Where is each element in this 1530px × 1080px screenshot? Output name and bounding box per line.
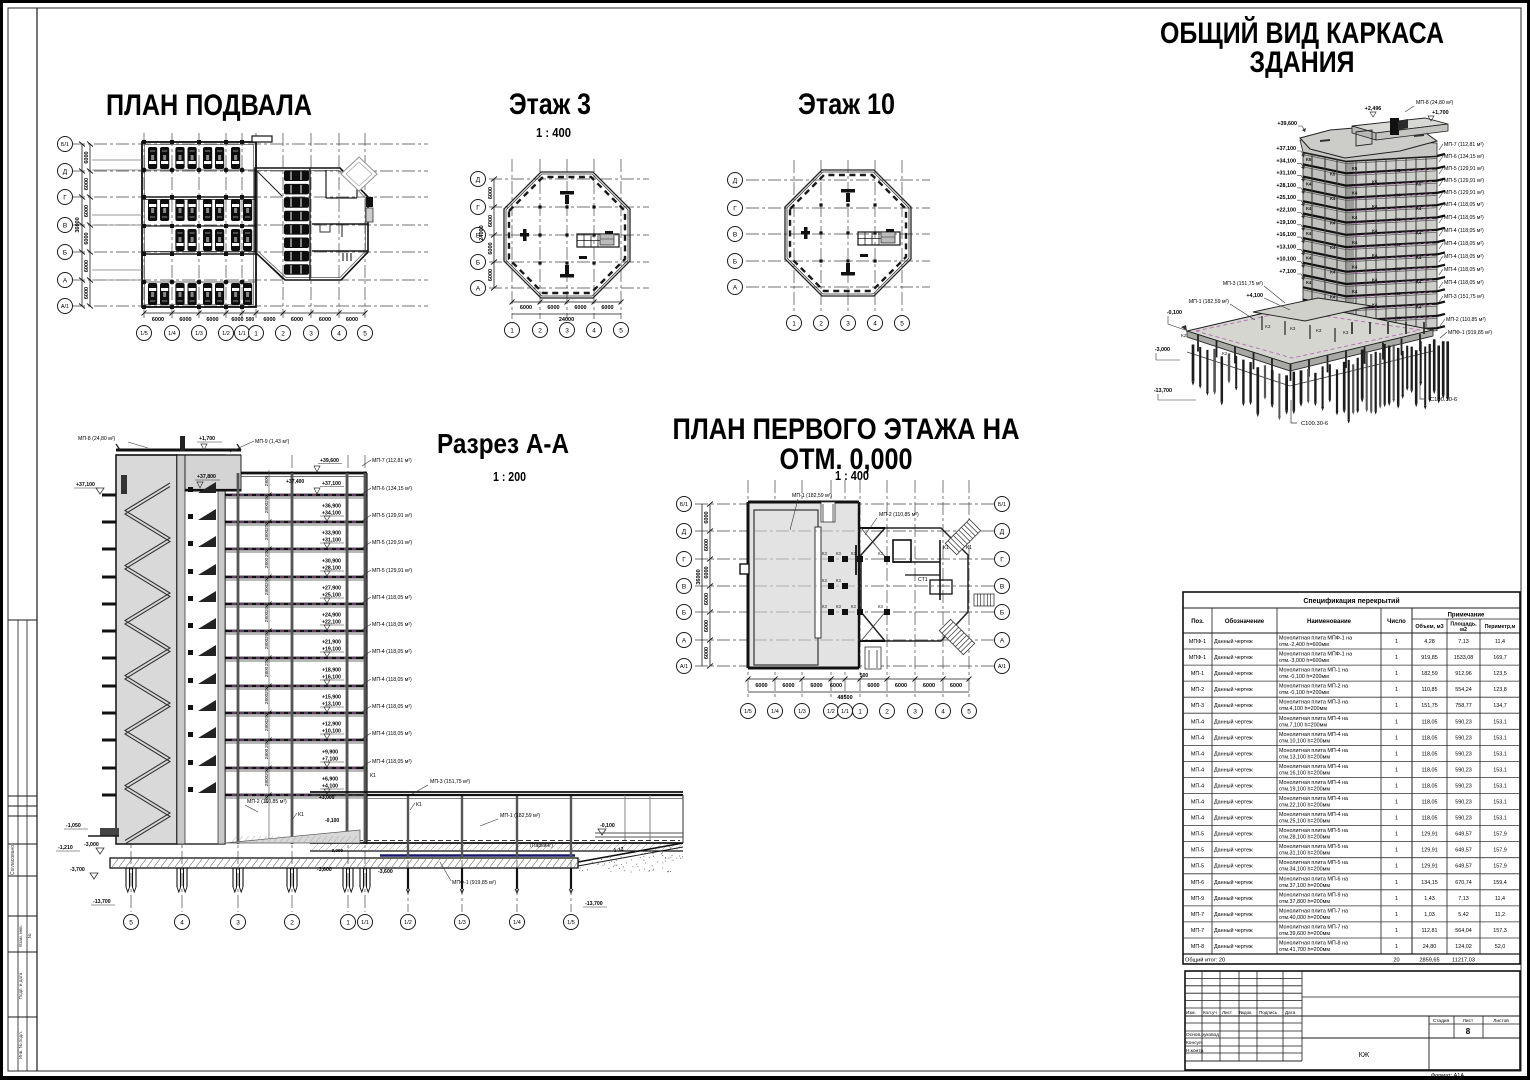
svg-text:1/1: 1/1 — [361, 920, 369, 926]
svg-text:-1,050: -1,050 — [66, 823, 81, 829]
svg-text:1: 1 — [1395, 800, 1398, 806]
svg-text:К3: К3 — [878, 551, 883, 556]
svg-text:МП-3: МП-3 — [1191, 703, 1204, 709]
svg-text:157,9: 157,9 — [1493, 832, 1507, 838]
svg-text:К4: К4 — [1330, 270, 1336, 275]
svg-text:157,9: 157,9 — [1493, 848, 1507, 854]
svg-text:670,74: 670,74 — [1455, 880, 1472, 886]
svg-text:24,80: 24,80 — [1423, 944, 1437, 950]
svg-text:В: В — [733, 231, 737, 238]
svg-text:-3,000: -3,000 — [1155, 347, 1170, 353]
svg-text:500: 500 — [860, 673, 869, 679]
svg-text:Б: Б — [682, 609, 686, 616]
svg-text:5: 5 — [967, 708, 971, 715]
svg-text:134,7: 134,7 — [1493, 703, 1507, 709]
svg-text:+39,600: +39,600 — [320, 458, 339, 464]
svg-text:К4: К4 — [1352, 289, 1358, 294]
svg-text:1: 1 — [1395, 655, 1398, 661]
svg-text:1/2: 1/2 — [222, 331, 230, 337]
svg-text:6000: 6000 — [84, 287, 90, 299]
svg-text:20: 20 — [1393, 958, 1399, 964]
svg-text:2800: 2800 — [264, 748, 270, 759]
svg-text:-1,210: -1,210 — [58, 845, 73, 851]
svg-text:1: 1 — [1395, 767, 1398, 773]
svg-text:200: 200 — [264, 713, 270, 721]
svg-text:МП-5 (129,91 м²): МП-5 (129,91 м²) — [1444, 190, 1484, 196]
svg-text:2: 2 — [281, 330, 285, 337]
svg-text:К5: К5 — [1352, 166, 1358, 171]
svg-text:Данный чертеж: Данный чертеж — [1214, 734, 1253, 741]
svg-text:(Паркинг): (Паркинг) — [530, 843, 553, 849]
svg-text:А: А — [1000, 637, 1005, 644]
svg-text:Число: Число — [1387, 619, 1406, 625]
svg-text:Подпись: Подпись — [1259, 1010, 1278, 1015]
svg-text:1: 1 — [1395, 928, 1398, 934]
svg-text:МП-4 (118,05 м²): МП-4 (118,05 м²) — [372, 677, 412, 683]
svg-text:6000: 6000 — [263, 317, 275, 323]
svg-text:2: 2 — [819, 320, 823, 327]
svg-text:+27,900: +27,900 — [322, 586, 341, 592]
svg-text:К4: К4 — [1372, 204, 1378, 209]
svg-text:отм.10,100 h=200мм: отм.10,100 h=200мм — [1279, 738, 1330, 744]
svg-text:МП-1: МП-1 — [1191, 671, 1204, 677]
svg-text:129,91: 129,91 — [1421, 848, 1438, 854]
svg-text:6000: 6000 — [319, 317, 331, 323]
svg-text:К4: К4 — [1330, 245, 1336, 250]
svg-text:МП-5: МП-5 — [1191, 848, 1204, 854]
svg-text:+2,496: +2,496 — [1365, 106, 1382, 112]
svg-text:+13,100: +13,100 — [1276, 244, 1296, 250]
svg-text:129,91: 129,91 — [1421, 832, 1438, 838]
svg-text:Обозначение: Обозначение — [1225, 618, 1265, 625]
svg-text:5,42: 5,42 — [1458, 912, 1469, 918]
svg-text:11,2: 11,2 — [1495, 912, 1505, 918]
svg-text:590,23: 590,23 — [1455, 767, 1472, 773]
svg-text:К4: К4 — [1395, 291, 1401, 296]
svg-text:4: 4 — [337, 330, 341, 337]
svg-text:К4: К4 — [1330, 221, 1336, 226]
svg-text:Д: Д — [733, 177, 738, 184]
svg-text:МП-5 (129,91 м²): МП-5 (129,91 м²) — [1444, 166, 1484, 172]
svg-text:Б/1: Б/1 — [998, 502, 1006, 508]
svg-text:-13,700: -13,700 — [1154, 388, 1172, 394]
svg-text:ЗДАНИЯ: ЗДАНИЯ — [1250, 46, 1355, 79]
svg-text:Инв. № подл.: Инв. № подл. — [18, 1031, 23, 1059]
svg-text:1: 1 — [1395, 687, 1398, 693]
svg-text:МП-5: МП-5 — [1191, 864, 1204, 870]
svg-text:МП-4 (118,05 м²): МП-4 (118,05 м²) — [1444, 228, 1484, 234]
svg-text:С100.30-6: С100.30-6 — [1301, 421, 1328, 427]
svg-text:182,59: 182,59 — [1421, 671, 1438, 677]
svg-text:6000: 6000 — [601, 305, 613, 311]
svg-text:отм.40,000 h=200мм: отм.40,000 h=200мм — [1279, 915, 1330, 921]
svg-text:МП-2 (110,85 м²): МП-2 (110,85 м²) — [879, 512, 919, 518]
svg-text:153,1: 153,1 — [1493, 719, 1507, 725]
svg-text:Периметр,м: Периметр,м — [1485, 624, 1516, 630]
svg-text:153,1: 153,1 — [1493, 800, 1507, 806]
svg-text:К4: К4 — [1330, 196, 1336, 201]
svg-text:МП-4: МП-4 — [1191, 735, 1204, 741]
svg-text:11,4: 11,4 — [1495, 896, 1505, 902]
svg-text:Этаж 3: Этаж 3 — [509, 88, 591, 121]
svg-text:11,4: 11,4 — [1495, 639, 1505, 645]
svg-text:Б: Б — [476, 259, 480, 266]
svg-text:К4: К4 — [1395, 316, 1401, 321]
svg-text:Д: Д — [682, 528, 687, 535]
svg-text:151,75: 151,75 — [1421, 703, 1438, 709]
svg-text:+16,100: +16,100 — [1276, 232, 1296, 238]
svg-text:отм.22,100 h=200мм: отм.22,100 h=200мм — [1279, 803, 1330, 809]
svg-text:6000: 6000 — [179, 317, 191, 323]
svg-text:6000: 6000 — [755, 683, 767, 689]
svg-text:ПЛАН ПОДВАЛА: ПЛАН ПОДВАЛА — [106, 89, 312, 122]
svg-text:Примечание: Примечание — [1448, 613, 1485, 619]
svg-text:+9,900: +9,900 — [322, 750, 338, 756]
svg-text:Монолитная плита МП-7 на: Монолитная плита МП-7 на — [1279, 908, 1348, 914]
svg-text:К4: К4 — [1352, 191, 1358, 196]
svg-text:МП-3 (151,75 м²): МП-3 (151,75 м²) — [1223, 281, 1263, 287]
svg-text:24000: 24000 — [559, 317, 574, 323]
svg-text:6000: 6000 — [488, 242, 494, 254]
svg-text:К5: К5 — [1395, 168, 1401, 173]
svg-text:153,1: 153,1 — [1493, 816, 1507, 822]
svg-text:Данный чертеж: Данный чертеж — [1214, 847, 1253, 854]
svg-text:А/1: А/1 — [998, 664, 1006, 670]
svg-text:отм.-0,100 h=200мм: отм.-0,100 h=200мм — [1279, 690, 1329, 696]
svg-text:А/1: А/1 — [680, 664, 688, 670]
svg-text:6000: 6000 — [704, 647, 710, 659]
svg-text:К4: К4 — [1416, 255, 1422, 260]
svg-text:Данный чертеж: Данный чертеж — [1214, 927, 1253, 934]
svg-text:К1: К1 — [943, 545, 949, 551]
svg-text:169,7: 169,7 — [1493, 655, 1507, 661]
svg-text:МП-4 (118,05 м²): МП-4 (118,05 м²) — [1444, 254, 1484, 260]
svg-text:К3: К3 — [851, 551, 856, 556]
svg-text:1: 1 — [1395, 864, 1398, 870]
svg-text:Данный чертеж: Данный чертеж — [1214, 863, 1253, 870]
svg-text:1: 1 — [1395, 896, 1398, 902]
svg-text:МП-1 (182,59 м²): МП-1 (182,59 м²) — [792, 493, 832, 499]
svg-text:1: 1 — [1395, 880, 1398, 886]
svg-text:отм.-3,000 h=600мм: отм.-3,000 h=600мм — [1279, 658, 1329, 664]
svg-text:2800: 2800 — [264, 666, 270, 677]
svg-text:Монолитная плита МП-4 на: Монолитная плита МП-4 на — [1279, 780, 1348, 786]
svg-text:МП-2 (110,85 м²): МП-2 (110,85 м²) — [247, 799, 287, 805]
svg-text:Согласовано: Согласовано — [10, 845, 16, 875]
svg-text:отм.4,100 h=200мм: отм.4,100 h=200мм — [1279, 706, 1327, 712]
svg-text:+34,100: +34,100 — [1276, 158, 1296, 164]
svg-text:-3,000: -3,000 — [330, 848, 343, 853]
svg-text:4: 4 — [180, 919, 184, 926]
svg-text:Б: Б — [1000, 609, 1004, 616]
svg-text:МП-7: МП-7 — [1191, 928, 1204, 934]
svg-text:912,96: 912,96 — [1455, 671, 1472, 677]
svg-text:11217,03: 11217,03 — [1452, 958, 1475, 964]
svg-text:С100.30-6: С100.30-6 — [1430, 397, 1457, 403]
svg-text:Данный чертеж: Данный чертеж — [1214, 638, 1253, 645]
svg-text:Н.контр.: Н.контр. — [1186, 1048, 1204, 1054]
svg-text:6000: 6000 — [520, 305, 532, 311]
svg-text:отм.-0,100 h=200мм: отм.-0,100 h=200мм — [1279, 674, 1329, 680]
svg-text:МПФ-1 (919,85 м²): МПФ-1 (919,85 м²) — [1448, 330, 1492, 336]
svg-text:6000: 6000 — [488, 269, 494, 281]
svg-text:+1,700: +1,700 — [1432, 110, 1449, 116]
svg-text:1: 1 — [1395, 719, 1398, 725]
svg-text:МП-5 (129,91 м²): МП-5 (129,91 м²) — [372, 540, 412, 546]
svg-text:6000: 6000 — [923, 683, 935, 689]
svg-text:Взам. инв.: Взам. инв. — [18, 925, 23, 947]
svg-text:2: 2 — [538, 327, 542, 334]
svg-text:24000: 24000 — [479, 225, 485, 240]
svg-text:МП-6 (134,15 м²): МП-6 (134,15 м²) — [372, 486, 412, 492]
svg-text:4: 4 — [873, 320, 877, 327]
svg-text:Б/1: Б/1 — [61, 142, 69, 148]
svg-text:5: 5 — [619, 327, 623, 334]
svg-text:Изм.: Изм. — [1186, 1010, 1196, 1015]
svg-text:ОБЩИЙ ВИД КАРКАСА: ОБЩИЙ ВИД КАРКАСА — [1160, 16, 1444, 50]
svg-text:118,05: 118,05 — [1421, 719, 1437, 725]
svg-text:649,57: 649,57 — [1455, 848, 1472, 854]
svg-text:5: 5 — [900, 320, 904, 327]
svg-text:Данный чертеж: Данный чертеж — [1214, 831, 1253, 838]
svg-text:1/3: 1/3 — [458, 920, 466, 926]
svg-text:1,03: 1,03 — [1424, 912, 1435, 918]
svg-text:Г: Г — [733, 205, 737, 212]
svg-text:153,1: 153,1 — [1493, 735, 1507, 741]
svg-text:4,28: 4,28 — [1424, 639, 1435, 645]
svg-text:МП-4 (118,05 м²): МП-4 (118,05 м²) — [372, 622, 412, 628]
svg-text:А/1: А/1 — [61, 304, 69, 310]
svg-text:№док.: №док. — [1239, 1010, 1252, 1015]
svg-text:Данный чертеж: Данный чертеж — [1214, 654, 1253, 661]
svg-text:1 : 400: 1 : 400 — [536, 125, 571, 140]
svg-text:6000: 6000 — [810, 683, 822, 689]
svg-text:отм.16,100 h=200мм: отм.16,100 h=200мм — [1279, 770, 1330, 776]
svg-text:7,13: 7,13 — [1458, 896, 1469, 902]
svg-text:1533,08: 1533,08 — [1454, 655, 1474, 661]
svg-text:Основ.руковод.: Основ.руковод. — [1186, 1032, 1220, 1038]
svg-text:1: 1 — [1395, 848, 1398, 854]
svg-text:Данный чертеж: Данный чертеж — [1214, 783, 1253, 790]
svg-text:-0,100: -0,100 — [1167, 310, 1182, 316]
svg-text:6000: 6000 — [704, 593, 710, 605]
svg-text:3: 3 — [846, 320, 850, 327]
svg-text:отм.37,100 h=200мм: отм.37,100 h=200мм — [1279, 883, 1330, 889]
svg-text:1: 1 — [1395, 703, 1398, 709]
svg-text:МП-9: МП-9 — [1191, 896, 1204, 902]
svg-text:36000: 36000 — [696, 569, 702, 584]
svg-text:118,05: 118,05 — [1421, 784, 1437, 790]
svg-text:К3: К3 — [836, 551, 841, 556]
svg-text:3: 3 — [236, 919, 240, 926]
svg-text:6000: 6000 — [867, 683, 879, 689]
svg-text:+37,400: +37,400 — [286, 479, 304, 485]
svg-text:110,85: 110,85 — [1421, 687, 1437, 693]
svg-text:МПФ-1: МПФ-1 — [1189, 639, 1206, 645]
svg-text:7,13: 7,13 — [1458, 639, 1469, 645]
svg-text:Данный чертеж: Данный чертеж — [1214, 670, 1253, 677]
svg-text:Монолитная плита МП-5 на: Монолитная плита МП-5 на — [1279, 844, 1348, 850]
svg-text:118,05: 118,05 — [1421, 735, 1437, 741]
svg-text:К4: К4 — [1395, 266, 1401, 271]
svg-text:Лист: Лист — [1222, 1010, 1233, 1015]
svg-text:Кол.уч: Кол.уч — [1203, 1010, 1217, 1015]
svg-text:МП-1 (182,59 м²): МП-1 (182,59 м²) — [500, 813, 540, 819]
svg-text:К4: К4 — [1395, 217, 1401, 222]
svg-text:-3,000: -3,000 — [84, 842, 99, 848]
svg-text:К4: К4 — [1306, 231, 1312, 236]
svg-text:Консул.: Консул. — [1186, 1040, 1203, 1046]
svg-text:200: 200 — [264, 631, 270, 639]
svg-text:-0,100: -0,100 — [600, 823, 615, 829]
svg-text:6000: 6000 — [231, 317, 243, 323]
svg-text:6000: 6000 — [488, 187, 494, 199]
svg-text:К3: К3 — [1316, 328, 1322, 334]
svg-text:К4: К4 — [1416, 206, 1422, 211]
svg-text:Б: Б — [733, 258, 737, 265]
svg-text:1: 1 — [1395, 944, 1398, 950]
svg-text:200: 200 — [264, 740, 270, 748]
svg-text:554,24: 554,24 — [1455, 687, 1472, 693]
svg-text:К1: К1 — [966, 545, 972, 551]
svg-text:6000: 6000 — [84, 151, 90, 163]
svg-text:1/2: 1/2 — [827, 709, 835, 715]
svg-text:К3: К3 — [836, 604, 841, 609]
svg-text:К2: К2 — [1181, 333, 1187, 339]
svg-text:+37,800: +37,800 — [197, 474, 216, 480]
svg-text:-0,100: -0,100 — [325, 818, 339, 824]
svg-text:+10,100: +10,100 — [322, 729, 341, 735]
svg-text:-3,700: -3,700 — [70, 867, 85, 873]
svg-text:МП-3 (151,75 м²): МП-3 (151,75 м²) — [1444, 294, 1484, 300]
svg-text:МП-3 (151,75 м²): МП-3 (151,75 м²) — [430, 779, 470, 785]
svg-text:МП-4 (118,05 м²): МП-4 (118,05 м²) — [372, 704, 412, 710]
svg-text:МП-4: МП-4 — [1191, 767, 1204, 773]
svg-text:отм.7,100 h=200мм: отм.7,100 h=200мм — [1279, 722, 1327, 728]
svg-text:К3: К3 — [836, 578, 841, 583]
svg-text:200: 200 — [264, 768, 270, 776]
svg-text:Монолитная плита МП-4 на: Монолитная плита МП-4 на — [1279, 764, 1348, 770]
svg-text:153,1: 153,1 — [1493, 767, 1507, 773]
svg-text:6000: 6000 — [895, 683, 907, 689]
svg-text:590,23: 590,23 — [1455, 800, 1472, 806]
svg-text:1: 1 — [254, 330, 258, 337]
svg-text:5: 5 — [129, 919, 133, 926]
svg-text:+13,100: +13,100 — [322, 702, 341, 708]
svg-text:К4: К4 — [1330, 294, 1336, 299]
svg-text:К5: К5 — [1306, 157, 1312, 162]
svg-text:К3: К3 — [1290, 326, 1296, 332]
svg-text:отм.34,100 h=200мм: отм.34,100 h=200мм — [1279, 867, 1330, 873]
svg-text:К4: К4 — [1372, 253, 1378, 258]
svg-text:Монолитная плита МП-9 на: Монолитная плита МП-9 на — [1279, 892, 1348, 898]
svg-text:отм.41,700 h=200мм: отм.41,700 h=200мм — [1279, 947, 1330, 953]
svg-text:отм.25,100 h=200мм: отм.25,100 h=200мм — [1279, 819, 1330, 825]
svg-text:919,85: 919,85 — [1421, 655, 1438, 661]
svg-text:МП-6: МП-6 — [1191, 880, 1204, 886]
svg-text:отм.13,100 h=200мм: отм.13,100 h=200мм — [1279, 754, 1330, 760]
svg-text:К3: К3 — [878, 604, 883, 609]
svg-text:МП-4: МП-4 — [1191, 800, 1204, 806]
svg-text:МП-6 (134,15 м²): МП-6 (134,15 м²) — [1444, 154, 1484, 160]
svg-text:Стадия: Стадия — [1433, 1018, 1450, 1024]
svg-text:МП-4 (118,05 м²): МП-4 (118,05 м²) — [372, 595, 412, 601]
svg-text:К3: К3 — [851, 604, 856, 609]
svg-text:1/4: 1/4 — [513, 920, 521, 926]
svg-text:№: № — [27, 933, 32, 938]
svg-text:6000: 6000 — [950, 683, 962, 689]
svg-text:МПФ-1 (919,85 м²): МПФ-1 (919,85 м²) — [452, 880, 496, 886]
svg-text:Д: Д — [63, 168, 68, 175]
svg-text:Монолитная плита МП-1 на: Монолитная плита МП-1 на — [1279, 668, 1348, 674]
svg-text:К3: К3 — [822, 578, 827, 583]
svg-text:К4: К4 — [1352, 264, 1358, 269]
svg-text:К4: К4 — [1395, 193, 1401, 198]
svg-text:К4: К4 — [1306, 182, 1312, 187]
svg-text:48500: 48500 — [837, 695, 852, 701]
svg-text:Монолитная плита МП-5 на: Монолитная плита МП-5 на — [1279, 828, 1348, 834]
svg-text:1,43: 1,43 — [1424, 896, 1435, 902]
svg-text:1: 1 — [1395, 832, 1398, 838]
svg-text:1/2: 1/2 — [404, 920, 412, 926]
svg-text:Этаж 10: Этаж 10 — [798, 88, 895, 121]
svg-text:118,05: 118,05 — [1421, 816, 1437, 822]
svg-text:129,91: 129,91 — [1421, 864, 1438, 870]
svg-text:Г: Г — [63, 194, 67, 201]
svg-text:Подп. и дата: Подп. и дата — [18, 972, 23, 999]
svg-text:6000: 6000 — [206, 317, 218, 323]
svg-text:564,04: 564,04 — [1455, 928, 1472, 934]
svg-text:МП-4 (118,05 м²): МП-4 (118,05 м²) — [372, 731, 412, 737]
svg-text:+37,100: +37,100 — [76, 482, 95, 488]
svg-text:590,23: 590,23 — [1455, 719, 1472, 725]
svg-text:1/1: 1/1 — [238, 331, 246, 337]
svg-text:52,0: 52,0 — [1495, 944, 1506, 950]
svg-text:отм.28,100 h=200мм: отм.28,100 h=200мм — [1279, 835, 1330, 841]
svg-text:1/1: 1/1 — [841, 709, 849, 715]
svg-text:К4: К4 — [1352, 240, 1358, 245]
svg-text:36000: 36000 — [75, 217, 81, 232]
svg-text:А: А — [682, 637, 687, 644]
svg-text:А: А — [733, 284, 738, 291]
svg-text:+18,900: +18,900 — [322, 668, 341, 674]
svg-text:Монолитная плита МП-6 на: Монолитная плита МП-6 на — [1279, 876, 1348, 882]
svg-text:МП-4 (118,05 м²): МП-4 (118,05 м²) — [1444, 202, 1484, 208]
svg-text:1 : 400: 1 : 400 — [835, 468, 869, 483]
svg-text:К4: К4 — [1306, 255, 1312, 260]
svg-text:Д: Д — [1000, 528, 1005, 535]
svg-text:4: 4 — [941, 708, 945, 715]
svg-text:1 : 200: 1 : 200 — [493, 469, 526, 484]
svg-text:К4: К4 — [1372, 229, 1378, 234]
svg-text:-13,700: -13,700 — [585, 901, 603, 907]
svg-text:118,05: 118,05 — [1421, 767, 1437, 773]
svg-text:Поз.: Поз. — [1191, 619, 1204, 625]
svg-text:Б/1: Б/1 — [680, 502, 688, 508]
svg-text:МП-5 (129,91 м²): МП-5 (129,91 м²) — [1444, 178, 1484, 184]
svg-text:Данный чертеж: Данный чертеж — [1214, 718, 1253, 725]
svg-text:200: 200 — [264, 658, 270, 666]
svg-text:+37,100: +37,100 — [322, 481, 341, 487]
svg-text:МПФ-1: МПФ-1 — [1189, 655, 1206, 661]
svg-text:отм.37,800 h=200мм: отм.37,800 h=200мм — [1279, 899, 1330, 905]
svg-text:153,1: 153,1 — [1493, 784, 1507, 790]
svg-text:+22,100: +22,100 — [1276, 208, 1296, 214]
svg-text:1/5: 1/5 — [140, 331, 148, 337]
svg-text:Данный чертеж: Данный чертеж — [1214, 702, 1253, 709]
svg-text:ПЛАН ПЕРВОГО ЭТАЖА НА: ПЛАН ПЕРВОГО ЭТАЖА НА — [673, 413, 1020, 446]
svg-text:Данный чертеж: Данный чертеж — [1214, 943, 1253, 950]
